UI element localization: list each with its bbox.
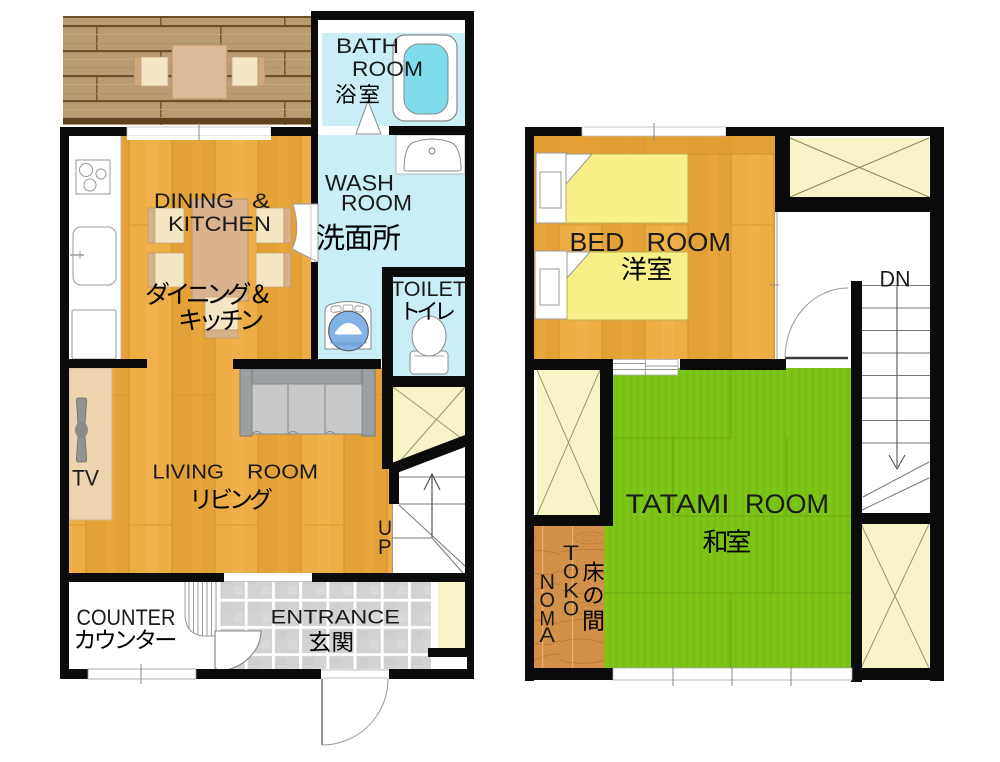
- svg-text:LIVING: LIVING: [153, 462, 225, 484]
- svg-text:KITCHEN: KITCHEN: [168, 213, 271, 236]
- svg-text:O: O: [563, 597, 579, 621]
- svg-text:ROOM: ROOM: [745, 489, 829, 519]
- svg-text:DINING: DINING: [154, 190, 234, 213]
- svg-text:COUNTER: COUNTER: [77, 605, 176, 630]
- svg-text:TOILET: TOILET: [391, 278, 466, 301]
- svg-text:TATAMI: TATAMI: [626, 489, 730, 519]
- svg-text:BATH: BATH: [336, 35, 399, 58]
- svg-text:ROOM: ROOM: [247, 462, 318, 484]
- svg-text:BED: BED: [570, 229, 625, 257]
- svg-text:&: &: [252, 190, 270, 213]
- svg-text:ROOM: ROOM: [647, 229, 732, 257]
- svg-text:A: A: [540, 623, 556, 647]
- svg-text:ROOM: ROOM: [352, 58, 423, 81]
- svg-text:ROOM: ROOM: [341, 191, 412, 216]
- svg-text:P: P: [378, 536, 392, 559]
- svg-text:ENTRANCE: ENTRANCE: [271, 607, 401, 629]
- svg-text:DN: DN: [880, 267, 911, 292]
- svg-text:TV: TV: [72, 466, 99, 491]
